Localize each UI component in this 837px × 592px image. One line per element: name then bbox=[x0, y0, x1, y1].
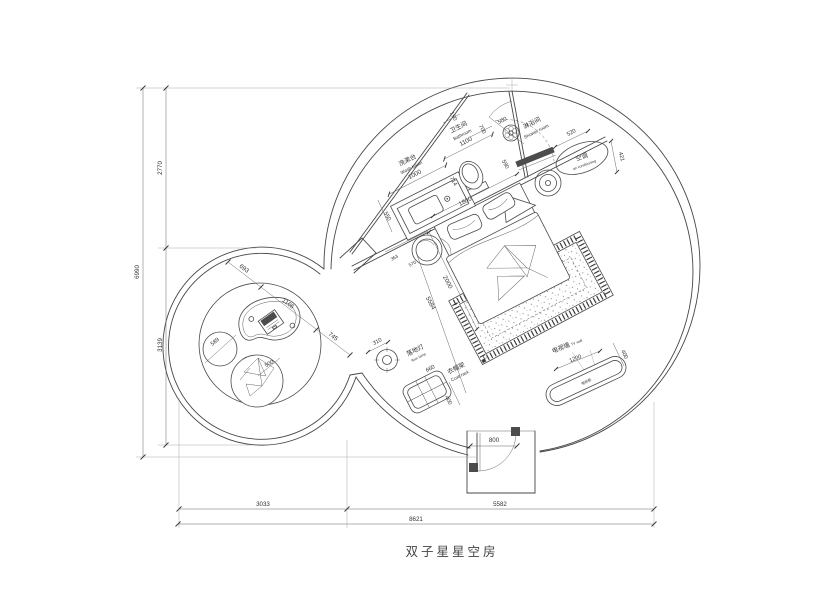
bedside-table bbox=[412, 235, 442, 265]
dim-bed-length: 2000 bbox=[441, 275, 454, 291]
rack-label: 衣帽架 Coat rack bbox=[446, 360, 471, 383]
dim-bottom-left: 3033 bbox=[256, 501, 270, 508]
tv-label-zh: 电视墙 bbox=[551, 341, 571, 355]
floor-lamp bbox=[374, 347, 400, 373]
dim-left-lower: 3139 bbox=[157, 338, 164, 352]
dim-bath-door: 500 bbox=[497, 116, 508, 126]
drawing-title: 双子星星空房 bbox=[405, 544, 498, 559]
dim-left-upper: 2770 bbox=[157, 161, 164, 175]
bottom-dimensions: 3033 5582 8621 bbox=[176, 398, 657, 528]
tv-cabinet: 电视柜 bbox=[542, 350, 629, 409]
dim-bottom-total: 8621 bbox=[409, 516, 423, 523]
floor-plan-canvas: 空调 air conditioning 电视柜 bbox=[0, 0, 837, 592]
entry-door-dim: 800 bbox=[489, 437, 500, 444]
dim-bottom-right: 5582 bbox=[493, 501, 507, 508]
main-entrance: 800 bbox=[467, 427, 535, 493]
dim-rack-depth: 400 bbox=[443, 395, 453, 406]
coat-rack bbox=[401, 369, 454, 416]
dim-520: 520 bbox=[566, 128, 577, 138]
floor-plan-page: 空调 air conditioning 电视柜 bbox=[0, 0, 837, 592]
lounge-room bbox=[199, 283, 321, 407]
lounge-chair bbox=[231, 355, 283, 407]
lamp-label: 落地灯 floor lamp bbox=[405, 342, 428, 363]
dim-lounge-c: 745 bbox=[327, 331, 340, 343]
dim-570: 570 bbox=[408, 259, 417, 267]
dim-lounge-a: 693 bbox=[238, 263, 251, 275]
tv-label: 电视墙 TV wall bbox=[551, 336, 584, 355]
dim-421: 421 bbox=[617, 151, 625, 162]
dim-590: 590 bbox=[500, 159, 510, 170]
shower-label: 淋浴间 Shower room bbox=[518, 113, 550, 140]
bathroom-label: 卫生间 Bathroom 1100 bbox=[431, 110, 495, 161]
dim-left-total: 6990 bbox=[134, 265, 141, 279]
tv-label-en: TV wall bbox=[570, 338, 583, 346]
dim-363: 363 bbox=[390, 253, 399, 261]
pouf bbox=[203, 332, 237, 366]
door-post-right bbox=[511, 427, 520, 436]
dim-pouf: 589 bbox=[210, 337, 221, 348]
dim-room-diag: 5584 bbox=[424, 296, 437, 312]
bathroom-door-arc bbox=[489, 101, 512, 117]
